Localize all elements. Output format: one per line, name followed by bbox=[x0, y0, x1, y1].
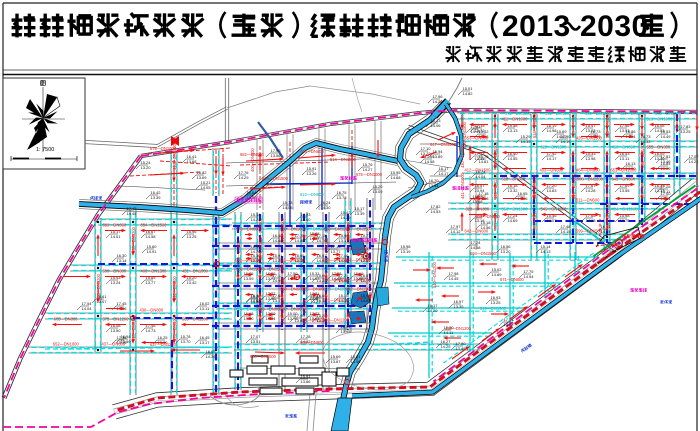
svg-text:578—DN1000: 578—DN1000 bbox=[150, 146, 177, 151]
svg-text:14.21: 14.21 bbox=[689, 159, 700, 164]
svg-text:13.75: 13.75 bbox=[620, 218, 631, 223]
svg-text:13.17: 13.17 bbox=[200, 340, 211, 345]
svg-text:14.68: 14.68 bbox=[504, 322, 515, 327]
svg-text:14.68: 14.68 bbox=[586, 218, 597, 223]
svg-text:565—DN800: 565—DN800 bbox=[300, 340, 324, 345]
svg-text:519—DN1500: 519—DN1500 bbox=[480, 306, 507, 311]
svg-text:14.91: 14.91 bbox=[147, 249, 158, 254]
svg-text:474—DN600: 474—DN600 bbox=[302, 226, 326, 231]
svg-text:511—DN1200: 511—DN1200 bbox=[302, 298, 307, 324]
svg-text:13.77: 13.77 bbox=[331, 249, 342, 254]
svg-text:13.39: 13.39 bbox=[151, 195, 162, 200]
svg-text:14.29: 14.29 bbox=[239, 175, 250, 180]
svg-text:1: 7500: 1: 7500 bbox=[36, 147, 54, 153]
svg-text:13.13: 13.13 bbox=[508, 128, 519, 133]
svg-text:14.12: 14.12 bbox=[451, 229, 462, 234]
svg-text:2013: 2013 bbox=[502, 10, 571, 43]
svg-text:645—DN800: 645—DN800 bbox=[612, 176, 636, 181]
svg-text:14.07: 14.07 bbox=[547, 218, 558, 223]
svg-text:13.11: 13.11 bbox=[661, 189, 671, 194]
svg-text:610—DN1200: 610—DN1200 bbox=[323, 318, 350, 323]
svg-text:13.11: 13.11 bbox=[620, 156, 630, 161]
svg-text:13.76: 13.76 bbox=[288, 316, 299, 321]
svg-text:13.98: 13.98 bbox=[586, 156, 597, 161]
svg-text:13.32: 13.32 bbox=[641, 139, 652, 144]
svg-text:14.58: 14.58 bbox=[425, 159, 436, 164]
svg-text:14.04: 14.04 bbox=[476, 174, 487, 179]
svg-text:670—DN1200: 670—DN1200 bbox=[346, 277, 351, 304]
svg-text:14.45: 14.45 bbox=[127, 211, 138, 216]
svg-text:14.05: 14.05 bbox=[201, 185, 212, 190]
svg-text:14.17: 14.17 bbox=[547, 156, 558, 161]
svg-text:13.25: 13.25 bbox=[491, 300, 502, 305]
svg-text:14.81: 14.81 bbox=[479, 159, 490, 164]
svg-text:441—DN1000: 441—DN1000 bbox=[460, 172, 465, 199]
svg-text:422—DN1000: 422—DN1000 bbox=[502, 116, 529, 121]
svg-text:456—DN800: 456—DN800 bbox=[612, 144, 636, 149]
svg-text:14.01: 14.01 bbox=[111, 234, 122, 239]
svg-text:14.04: 14.04 bbox=[82, 306, 93, 311]
svg-text:13.36: 13.36 bbox=[266, 296, 277, 301]
svg-text:14.28: 14.28 bbox=[586, 188, 597, 193]
svg-text:445—DN800: 445—DN800 bbox=[280, 300, 285, 324]
svg-text:14.30: 14.30 bbox=[321, 205, 332, 210]
svg-text:14.82: 14.82 bbox=[463, 91, 474, 96]
svg-text:13.70: 13.70 bbox=[181, 339, 192, 344]
svg-text:13.69: 13.69 bbox=[197, 175, 208, 180]
svg-text:13.09: 13.09 bbox=[373, 189, 384, 194]
svg-text:14.05: 14.05 bbox=[601, 229, 612, 234]
svg-text:14.58: 14.58 bbox=[471, 245, 482, 250]
svg-text:14.83: 14.83 bbox=[547, 188, 558, 193]
svg-text:545—DN1000: 545—DN1000 bbox=[541, 206, 568, 211]
svg-text:550—DN1000: 550—DN1000 bbox=[502, 206, 529, 211]
svg-text:535—DN1200: 535—DN1200 bbox=[182, 316, 209, 321]
svg-text:640—DN1200: 640—DN1200 bbox=[432, 261, 437, 288]
svg-text:489—DN1500: 489—DN1500 bbox=[620, 111, 647, 116]
svg-text:647—DN1500: 647—DN1500 bbox=[430, 142, 457, 147]
svg-text:590—DN600: 590—DN600 bbox=[103, 268, 127, 273]
svg-text:472—DN1200: 472—DN1200 bbox=[505, 111, 532, 116]
svg-text:615—DN600: 615—DN600 bbox=[300, 192, 324, 197]
svg-text:14.40: 14.40 bbox=[301, 217, 312, 222]
svg-text:13.46: 13.46 bbox=[661, 159, 672, 164]
svg-text:13.11: 13.11 bbox=[200, 306, 210, 311]
svg-text:14.69: 14.69 bbox=[508, 218, 519, 223]
svg-text:13.56: 13.56 bbox=[271, 153, 282, 158]
svg-text:555—DN600: 555—DN600 bbox=[647, 144, 671, 149]
svg-text:14.67: 14.67 bbox=[310, 276, 321, 281]
svg-text:14.15: 14.15 bbox=[561, 229, 572, 234]
svg-text:13.25: 13.25 bbox=[681, 129, 692, 134]
svg-text:500—DN1200: 500—DN1200 bbox=[577, 176, 604, 181]
svg-text:529—DN1000: 529—DN1000 bbox=[647, 116, 674, 121]
svg-text:14.19: 14.19 bbox=[561, 139, 572, 144]
svg-text:424—DN1000: 424—DN1000 bbox=[612, 206, 639, 211]
svg-text:13.59: 13.59 bbox=[121, 339, 132, 344]
svg-text:14.17: 14.17 bbox=[439, 171, 450, 176]
svg-text:14.68: 14.68 bbox=[391, 175, 402, 180]
svg-text:514—DN1500: 514—DN1500 bbox=[330, 157, 357, 162]
svg-text:14.55: 14.55 bbox=[508, 156, 519, 161]
svg-text:486—DN1500: 486—DN1500 bbox=[141, 268, 168, 273]
svg-text:13.20: 13.20 bbox=[141, 165, 152, 170]
svg-text:630—DN1500: 630—DN1500 bbox=[250, 354, 277, 359]
svg-text:13.14: 13.14 bbox=[117, 258, 128, 263]
svg-text:13.67: 13.67 bbox=[331, 359, 342, 364]
svg-text:400—DN800: 400—DN800 bbox=[300, 149, 324, 154]
svg-text:13.19: 13.19 bbox=[401, 249, 412, 254]
svg-text:451—DN1000: 451—DN1000 bbox=[182, 268, 209, 273]
svg-text:413—DN1200: 413—DN1200 bbox=[445, 326, 472, 331]
svg-text:13.25: 13.25 bbox=[187, 234, 198, 239]
svg-text:570—DN600: 570—DN600 bbox=[236, 226, 260, 231]
svg-text:13.39: 13.39 bbox=[355, 211, 366, 216]
svg-text:13.51: 13.51 bbox=[251, 339, 262, 344]
svg-text:684—DN600: 684—DN600 bbox=[346, 246, 370, 251]
svg-text:2030: 2030 bbox=[580, 10, 649, 43]
svg-text:14.39: 14.39 bbox=[521, 139, 532, 144]
svg-text:618—DN600: 618—DN600 bbox=[502, 176, 526, 181]
svg-text:400—DN600: 400—DN600 bbox=[250, 148, 255, 172]
svg-text:652—DN1000: 652—DN1000 bbox=[53, 342, 80, 347]
svg-text:438—DN800: 438—DN800 bbox=[346, 220, 351, 244]
svg-text:14.06: 14.06 bbox=[431, 123, 442, 128]
svg-text:13.78: 13.78 bbox=[337, 195, 348, 200]
svg-text:13.95: 13.95 bbox=[341, 329, 352, 334]
svg-text:14.45: 14.45 bbox=[449, 276, 460, 281]
svg-text:14.73: 14.73 bbox=[146, 328, 157, 333]
svg-text:13.42: 13.42 bbox=[187, 280, 198, 285]
svg-text:13.34: 13.34 bbox=[429, 183, 440, 188]
svg-text:671—DN600: 671—DN600 bbox=[500, 277, 524, 282]
svg-text:511—DN600: 511—DN600 bbox=[576, 198, 600, 203]
svg-text:13.77: 13.77 bbox=[146, 280, 157, 285]
svg-text:14.49: 14.49 bbox=[661, 134, 672, 139]
svg-text:588—DN1000: 588—DN1000 bbox=[345, 258, 372, 263]
svg-text:502—DN1500: 502—DN1500 bbox=[545, 111, 572, 116]
svg-text:14.13: 14.13 bbox=[541, 249, 552, 254]
svg-text:505—DN800: 505—DN800 bbox=[302, 286, 326, 291]
svg-text:14.29: 14.29 bbox=[341, 215, 352, 220]
svg-text:14.24: 14.24 bbox=[251, 217, 262, 222]
svg-text:575—DN1200: 575—DN1200 bbox=[103, 316, 130, 321]
svg-text:13.20: 13.20 bbox=[501, 249, 512, 254]
svg-text:14.47: 14.47 bbox=[471, 129, 482, 134]
svg-text:629—DN1500: 629—DN1500 bbox=[541, 144, 568, 149]
svg-text:675—DN1000: 675—DN1000 bbox=[356, 172, 383, 177]
svg-text:14.22: 14.22 bbox=[433, 99, 444, 104]
svg-text:659—DN1200: 659—DN1200 bbox=[585, 111, 612, 116]
svg-text:13.71: 13.71 bbox=[266, 276, 277, 281]
svg-text:14.53: 14.53 bbox=[431, 209, 442, 214]
svg-text:13.86: 13.86 bbox=[301, 379, 312, 384]
svg-text:599—DN1500: 599—DN1500 bbox=[576, 229, 603, 234]
svg-text:13.55: 13.55 bbox=[620, 188, 631, 193]
svg-text:654—DN1500: 654—DN1500 bbox=[141, 222, 168, 227]
svg-text:13.24: 13.24 bbox=[111, 280, 122, 285]
svg-text:605—DN800: 605—DN800 bbox=[54, 316, 78, 321]
svg-text:556—DN1200: 556—DN1200 bbox=[571, 203, 576, 230]
svg-text:14.94: 14.94 bbox=[524, 274, 535, 279]
svg-text:13.35: 13.35 bbox=[454, 304, 465, 309]
svg-text:430—DN800: 430—DN800 bbox=[140, 308, 164, 313]
svg-text:14.29: 14.29 bbox=[441, 344, 452, 349]
svg-text:13.50: 13.50 bbox=[111, 328, 122, 333]
svg-text:13.27: 13.27 bbox=[311, 299, 322, 304]
svg-text:13.59: 13.59 bbox=[244, 276, 255, 281]
svg-text:13.68: 13.68 bbox=[187, 159, 198, 164]
svg-text:13.26: 13.26 bbox=[307, 171, 318, 176]
svg-text:14.96: 14.96 bbox=[351, 359, 362, 364]
svg-text:14.20: 14.20 bbox=[428, 308, 439, 313]
svg-text:14.05: 14.05 bbox=[283, 205, 294, 210]
svg-text:594—DN1500: 594—DN1500 bbox=[470, 251, 497, 256]
svg-text:14.58: 14.58 bbox=[146, 234, 157, 239]
svg-text:689—DN600: 689—DN600 bbox=[103, 222, 127, 227]
svg-text:439—DN1000: 439—DN1000 bbox=[324, 257, 329, 284]
svg-text:558—DN600: 558—DN600 bbox=[655, 111, 679, 116]
svg-text:14.56: 14.56 bbox=[481, 225, 492, 230]
svg-text:14.39: 14.39 bbox=[206, 354, 217, 359]
svg-text:519—DN1500: 519—DN1500 bbox=[262, 176, 289, 181]
